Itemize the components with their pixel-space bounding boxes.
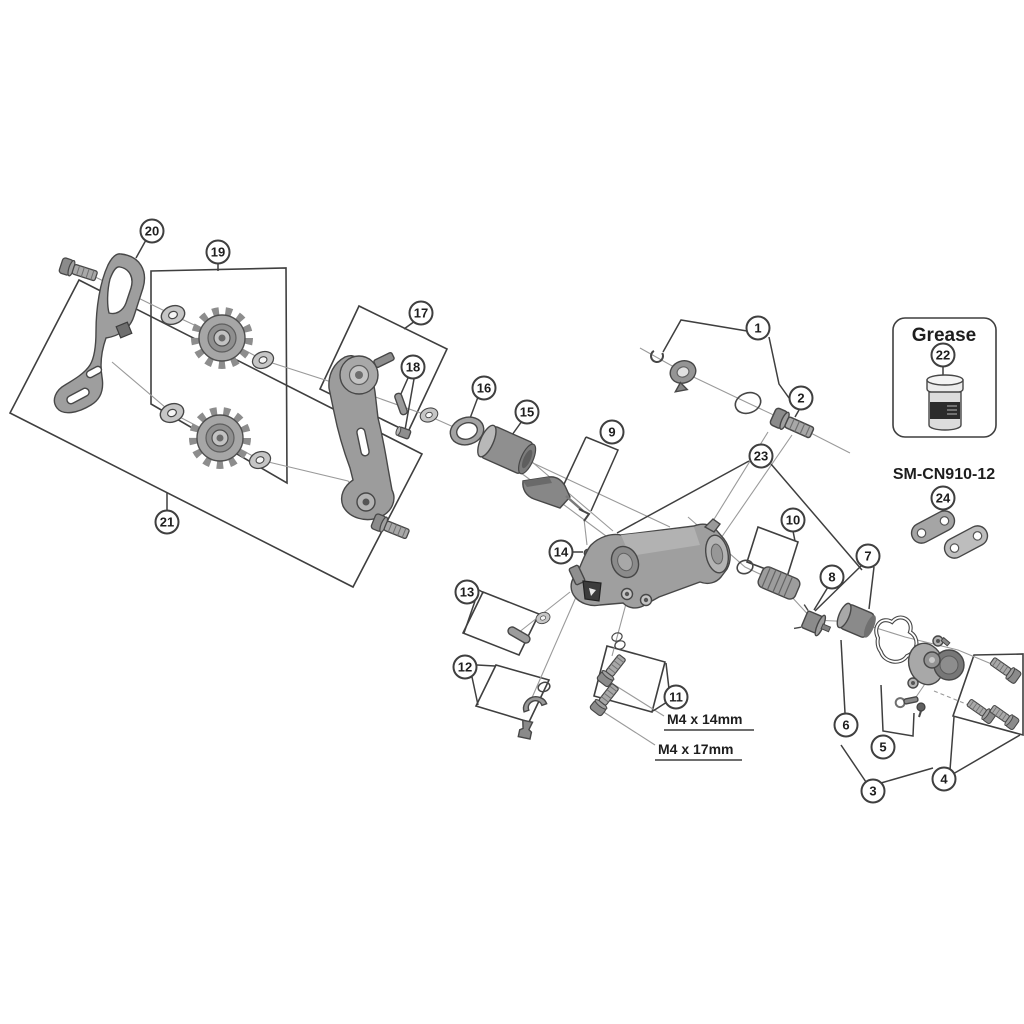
bracket-axle-unit — [903, 636, 964, 689]
callout-20: 20 — [141, 220, 164, 243]
tension-spring — [756, 565, 801, 601]
grease-jar — [927, 375, 963, 430]
svg-text:10: 10 — [786, 513, 800, 528]
saddle-12 — [520, 693, 546, 712]
callout-21: 21 — [156, 511, 179, 534]
b-axle-bolt — [769, 407, 815, 441]
svg-text:14: 14 — [554, 545, 569, 560]
snap-ring — [649, 348, 665, 364]
derailleur-body — [569, 519, 731, 608]
callout-3: 3 — [862, 780, 885, 803]
svg-text:17: 17 — [414, 306, 428, 321]
svg-text:24: 24 — [936, 491, 951, 506]
plate-washer — [418, 406, 440, 425]
bolt-spec-17mm-label: M4 x 17mm — [658, 741, 733, 757]
callout-7: 7 — [857, 545, 880, 568]
parts-diagram-page: Grease SM-CN910-12 M4 x 14mm M4 x 17mm 1… — [0, 0, 1024, 1024]
callout-5: 5 — [872, 736, 895, 759]
group-box-12 — [476, 665, 549, 722]
mounting-screws — [965, 655, 1022, 730]
svg-text:13: 13 — [460, 585, 474, 600]
callout-layer: 123456789101112131415161718192021222324 — [141, 220, 956, 803]
callout-16: 16 — [473, 377, 496, 400]
callout-23: 23 — [750, 445, 773, 468]
callout-15: 15 — [516, 401, 539, 424]
svg-text:2: 2 — [797, 391, 804, 406]
callout-8: 8 — [821, 566, 844, 589]
callout-2: 2 — [790, 387, 813, 410]
plate-bolt — [370, 513, 410, 542]
svg-text:18: 18 — [406, 360, 420, 375]
leader-lines — [136, 240, 1020, 783]
svg-text:6: 6 — [842, 718, 849, 733]
svg-text:9: 9 — [608, 425, 615, 440]
stopper-plate-and-screw — [895, 695, 925, 717]
callout-12: 12 — [454, 656, 477, 679]
callout-14: 14 — [550, 541, 573, 564]
plug-12 — [518, 720, 533, 739]
callout-1: 1 — [747, 317, 770, 340]
svg-text:8: 8 — [828, 570, 835, 585]
svg-text:21: 21 — [160, 515, 174, 530]
group-boxes — [10, 268, 1023, 735]
guide-pulley — [195, 311, 249, 365]
callout-13: 13 — [456, 581, 479, 604]
svg-text:20: 20 — [145, 224, 159, 239]
chain-quick-links — [908, 507, 991, 561]
callout-9: 9 — [601, 421, 624, 444]
chain-link-model-label: SM-CN910-12 — [893, 466, 995, 483]
b-axle-bearing — [666, 357, 701, 393]
svg-text:1: 1 — [754, 321, 761, 336]
bolt-spec-14mm-label: M4 x 14mm — [667, 711, 742, 727]
svg-text:7: 7 — [864, 549, 871, 564]
exploded-diagram: Grease SM-CN910-12 M4 x 14mm M4 x 17mm 1… — [0, 0, 1024, 1024]
svg-text:23: 23 — [754, 449, 768, 464]
svg-text:12: 12 — [458, 660, 472, 675]
svg-text:15: 15 — [520, 405, 534, 420]
clutch-switch-lever — [523, 477, 589, 521]
svg-text:19: 19 — [211, 245, 225, 260]
spring-cap — [834, 602, 878, 640]
svg-text:22: 22 — [936, 348, 950, 363]
svg-text:11: 11 — [669, 690, 683, 705]
svg-text:3: 3 — [869, 784, 876, 799]
callout-11: 11 — [665, 686, 688, 709]
svg-text:4: 4 — [940, 772, 948, 787]
svg-text:5: 5 — [879, 740, 886, 755]
callout-17: 17 — [410, 302, 433, 325]
tension-pulley — [193, 411, 247, 465]
callout-10: 10 — [782, 509, 805, 532]
callout-6: 6 — [835, 714, 858, 737]
callout-4: 4 — [933, 768, 956, 791]
cage-stopper-pin — [394, 392, 411, 439]
callout-18: 18 — [402, 356, 425, 379]
outer-plate — [54, 254, 144, 413]
callout-22: 22 — [932, 344, 955, 367]
svg-text:16: 16 — [477, 381, 491, 396]
pin-13 — [507, 626, 532, 645]
callout-19: 19 — [207, 241, 230, 264]
callout-24: 24 — [932, 487, 955, 510]
cage-mount-bolts — [589, 653, 628, 717]
